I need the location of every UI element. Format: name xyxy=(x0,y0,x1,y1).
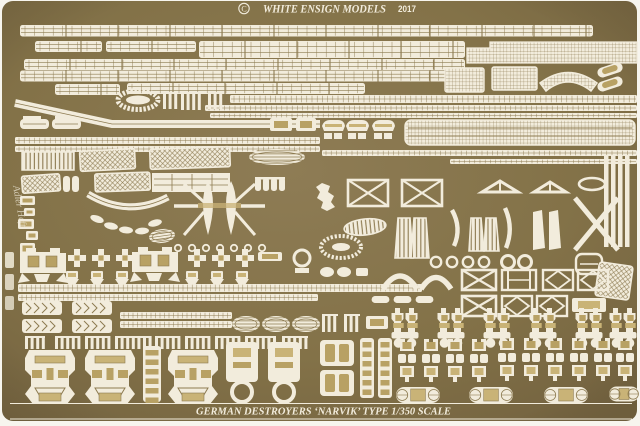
svg-text:GERMAN DESTROYERS ‘NARVIK’ TYP: GERMAN DESTROYERS ‘NARVIK’ TYPE 1/350 SC… xyxy=(196,406,451,418)
svg-text:WHITE ENSIGN MODELS: WHITE ENSIGN MODELS xyxy=(263,2,386,16)
svg-text:2017: 2017 xyxy=(398,4,416,15)
svg-text:C: C xyxy=(241,5,246,14)
